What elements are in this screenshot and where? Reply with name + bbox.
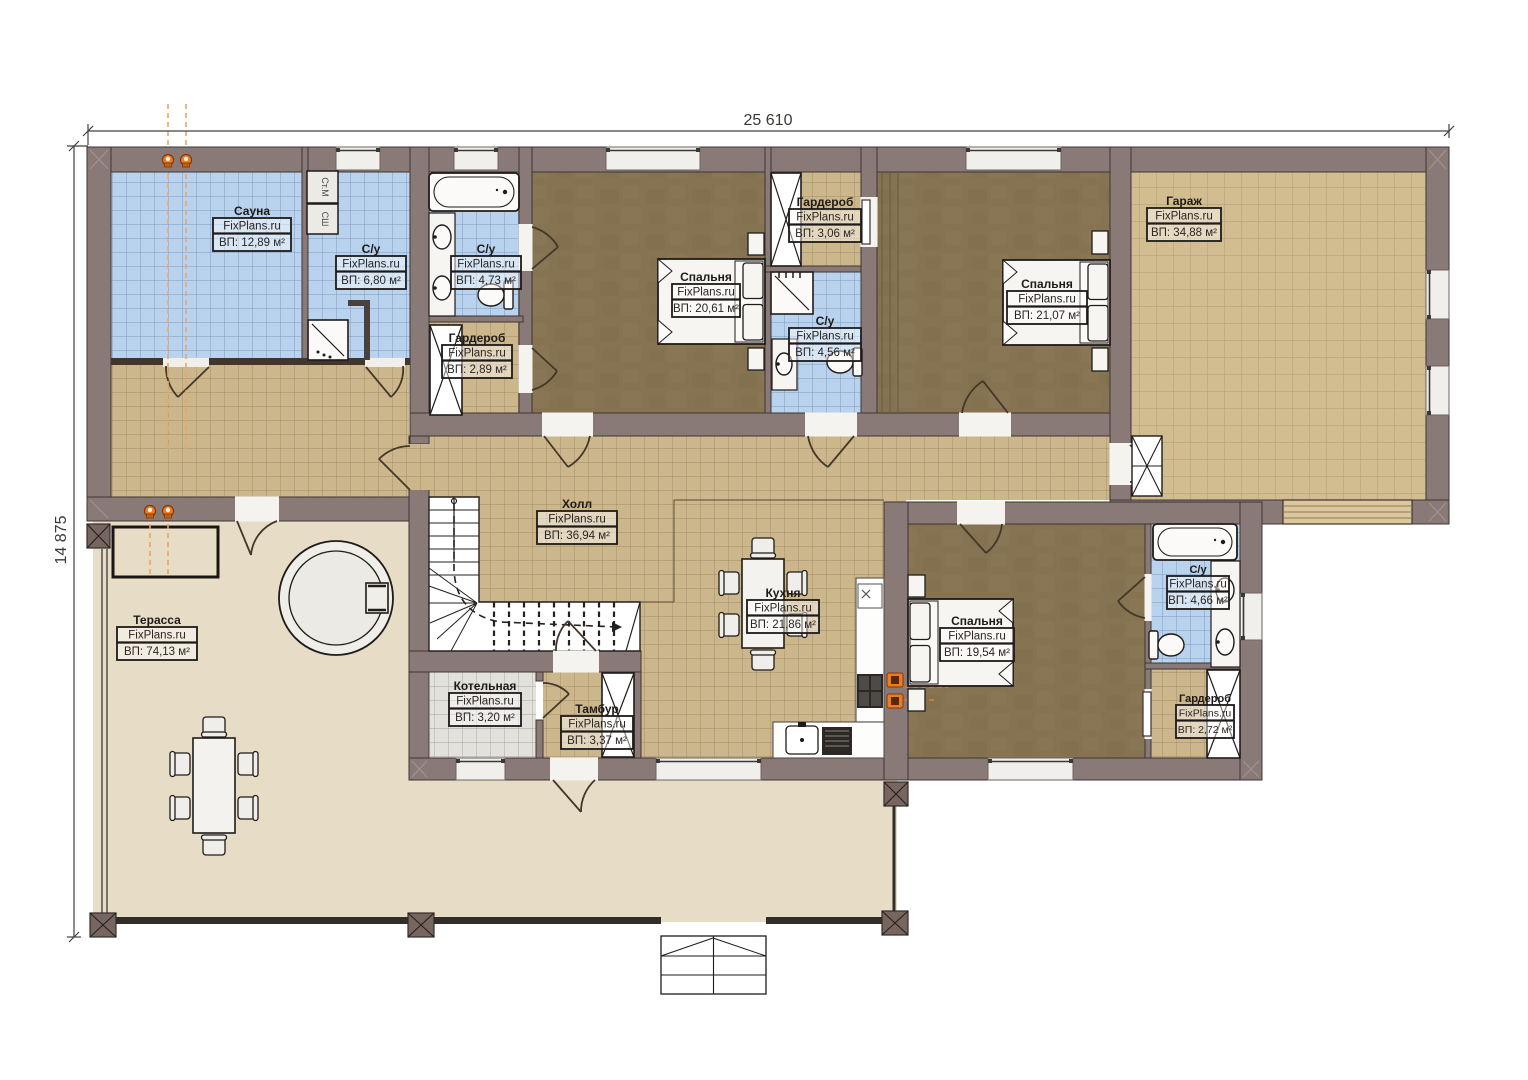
- svg-text:Спальня: Спальня: [680, 270, 732, 284]
- svg-text:Сауна: Сауна: [234, 204, 270, 218]
- svg-text:ВП: 3,06 м²: ВП: 3,06 м²: [795, 228, 855, 240]
- svg-text:ВП: 74,13 м²: ВП: 74,13 м²: [124, 646, 190, 658]
- svg-text:FixPlans.ru: FixPlans.ru: [456, 696, 514, 708]
- svg-text:Гардероб: Гардероб: [1179, 693, 1231, 705]
- svg-text:ВП: 2,72 м²: ВП: 2,72 м²: [1178, 724, 1233, 736]
- svg-text:Спальня: Спальня: [1021, 277, 1073, 291]
- svg-text:FixPlans.ru: FixPlans.ru: [754, 603, 812, 615]
- svg-text:FixPlans.ru: FixPlans.ru: [677, 287, 735, 299]
- svg-text:14 875: 14 875: [53, 515, 70, 564]
- svg-text:ВП: 2,89 м²: ВП: 2,89 м²: [447, 364, 507, 376]
- svg-text:FixPlans.ru: FixPlans.ru: [1155, 211, 1213, 223]
- svg-text:FixPlans.ru: FixPlans.ru: [1169, 579, 1227, 591]
- svg-text:ВП: 6,80 м²: ВП: 6,80 м²: [341, 275, 401, 287]
- svg-text:FixPlans.ru: FixPlans.ru: [457, 259, 515, 271]
- svg-text:С/у: С/у: [816, 314, 835, 328]
- svg-text:Гараж: Гараж: [1166, 194, 1202, 208]
- svg-text:СШ: СШ: [320, 212, 330, 227]
- svg-text:FixPlans.ru: FixPlans.ru: [568, 719, 626, 731]
- svg-text:ВП: 3,37 м²: ВП: 3,37 м²: [567, 735, 627, 747]
- svg-text:FixPlans.ru: FixPlans.ru: [796, 331, 854, 343]
- svg-text:Котельная: Котельная: [454, 679, 517, 693]
- svg-text:Терасса: Терасса: [133, 613, 181, 627]
- svg-text:С/у: С/у: [1189, 564, 1207, 576]
- svg-text:ВП: 19,54 м²: ВП: 19,54 м²: [944, 647, 1010, 659]
- svg-text:ВП: 21,07 м²: ВП: 21,07 м²: [1014, 310, 1080, 322]
- svg-text:С/у: С/у: [477, 242, 496, 256]
- svg-text:ВП: 4,66 м²: ВП: 4,66 м²: [1168, 595, 1228, 607]
- svg-text:ВП: 12,89 м²: ВП: 12,89 м²: [219, 237, 285, 249]
- svg-text:FixPlans.ru: FixPlans.ru: [1018, 294, 1076, 306]
- svg-text:ВП: 4,73 м²: ВП: 4,73 м²: [456, 275, 516, 287]
- svg-text:FixPlans.ru: FixPlans.ru: [128, 630, 186, 642]
- svg-text:Тамбур: Тамбур: [575, 702, 619, 716]
- svg-text:FixPlans.ru: FixPlans.ru: [548, 514, 606, 526]
- svg-text:FixPlans.ru: FixPlans.ru: [948, 631, 1006, 643]
- svg-text:FixPlans.ru: FixPlans.ru: [796, 212, 854, 224]
- svg-text:Спальня: Спальня: [951, 614, 1003, 628]
- svg-text:FixPlans.ru: FixPlans.ru: [342, 259, 400, 271]
- svg-text:ВП: 34,88 м²: ВП: 34,88 м²: [1151, 227, 1217, 239]
- svg-text:ВП: 20,61 м²: ВП: 20,61 м²: [673, 303, 739, 315]
- svg-text:ВП: 4,56 м²: ВП: 4,56 м²: [795, 347, 855, 359]
- svg-text:25 610: 25 610: [744, 112, 793, 129]
- svg-text:Кухня: Кухня: [765, 586, 800, 600]
- svg-text:Гардероб: Гардероб: [797, 195, 854, 209]
- svg-text:ВП: 21,86 м²: ВП: 21,86 м²: [750, 619, 816, 631]
- svg-text:Гардероб: Гардероб: [449, 331, 506, 345]
- svg-text:FixPlans.ru: FixPlans.ru: [223, 221, 281, 233]
- svg-text:FixPlans.ru: FixPlans.ru: [1179, 708, 1232, 720]
- svg-text:Холл: Холл: [562, 497, 592, 511]
- svg-text:ВП: 36,94 м²: ВП: 36,94 м²: [544, 530, 610, 542]
- svg-text:С/у: С/у: [362, 242, 381, 256]
- svg-text:Ст.М: Ст.М: [320, 177, 330, 197]
- svg-text:ВП: 3,20 м²: ВП: 3,20 м²: [455, 712, 515, 724]
- svg-text:FixPlans.ru: FixPlans.ru: [448, 348, 506, 360]
